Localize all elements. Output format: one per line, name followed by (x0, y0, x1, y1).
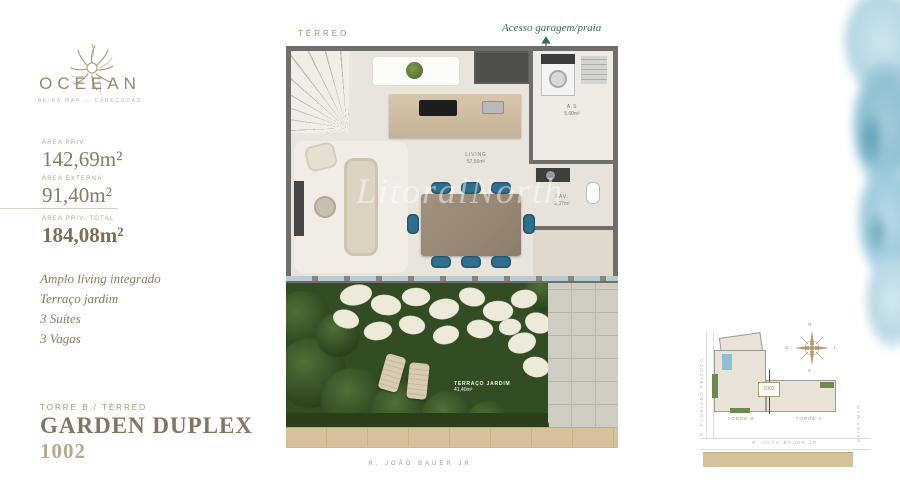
feature-suites: 3 Suítes (40, 311, 81, 327)
area-total-label: ÁREA PRIV. TOTAL (42, 216, 114, 222)
service-room-label: A.S 5,60m² (533, 104, 611, 118)
compass-n: N (808, 322, 811, 327)
brochure-page: OCEEAN BEIRA MAR — CABEÇUDAS ÁREA PRIV. … (0, 0, 900, 495)
lounge-chair-icon (406, 362, 430, 400)
dining-chair-icon (431, 182, 451, 194)
washer-panel (541, 54, 575, 64)
watercolor-accent (866, 210, 888, 254)
lav-sink-icon (546, 171, 555, 180)
dining-table-icon (421, 194, 521, 256)
side-paving (548, 283, 618, 427)
minimap-sidewalk (703, 452, 853, 467)
site-minimap: N S L O 1002 TORRE B TORRE A R. FLORIANO… (700, 322, 870, 468)
compass-e: L (834, 345, 837, 350)
washer-drum-icon (549, 70, 567, 88)
sofa-icon (344, 158, 378, 256)
kitchen-cabinet (474, 51, 530, 84)
beira-mar-label: BEIRA MAR (856, 372, 861, 442)
area-externa-value: 91,40m² (42, 183, 112, 208)
unit-number: 1002 (40, 439, 86, 464)
unit-tower-floor: TORRE B / TÉRREO (40, 403, 147, 412)
minimap-green (820, 382, 834, 388)
main-street-label: R. JOÃO BAUER JR (330, 461, 510, 467)
minimap-unit-1002: 1002 (758, 382, 780, 397)
service-room-area: 5,60m² (533, 111, 611, 118)
minimap-pool (722, 354, 732, 370)
service-room-name: A.S (533, 104, 611, 111)
sliding-door (286, 276, 618, 281)
living-room-label: LIVING 57,56m² (444, 152, 508, 166)
feature-terraco: Terraço jardim (40, 291, 118, 307)
dining-chair-icon (407, 214, 419, 234)
area-externa-label: ÁREA EXTERNA (42, 176, 102, 182)
watercolor-accent (858, 110, 884, 166)
living-room-name: LIVING (444, 152, 508, 159)
brand-name: OCEEAN (20, 74, 160, 94)
dining-chair-icon (461, 182, 481, 194)
dining-chair-icon (491, 182, 511, 194)
plant-icon (406, 62, 423, 79)
plan-floor-label: TÉRREO (298, 29, 349, 38)
living-room-area: 57,56m² (444, 159, 508, 166)
minimap-street-bottom-label: R. JOÃO BAUER JR (730, 440, 840, 445)
terrace-area: 41,40m² (454, 387, 534, 393)
minimap-street-left-label: R. FLORIANO PEIXOTO (699, 336, 704, 436)
area-priv-value: 142,69m² (42, 147, 122, 172)
feature-vagas: 3 Vagas (40, 331, 81, 347)
dining-chair-icon (461, 256, 481, 268)
dining-chair-icon (431, 256, 451, 268)
bottom-hedge (286, 413, 548, 427)
appliance-grille (581, 56, 607, 84)
minimap-green (730, 408, 750, 413)
lav-room-name: LAV. (533, 194, 591, 201)
lav-room-area: 2,37m² (533, 201, 591, 208)
compass-w: O (785, 345, 789, 350)
tv-panel-icon (294, 181, 304, 236)
divider-line (0, 208, 118, 209)
floor-plan: A.S 5,60m² LAV. 2,37m² LIVING 57,56m² (286, 46, 618, 427)
minimap-green (712, 374, 718, 398)
dining-chair-icon (491, 256, 511, 268)
dining-chair-icon (523, 214, 535, 234)
entry-hall (533, 230, 613, 278)
area-priv-label: ÁREA PRIV. (42, 140, 87, 146)
compass-s: S (808, 368, 811, 373)
coffee-table-icon (314, 196, 336, 218)
terrace-label: TERRAÇO JARDIM 41,40m² (454, 381, 534, 393)
feature-living: Amplo living integrado (40, 271, 161, 287)
compass-icon (792, 328, 832, 368)
staircase (291, 51, 349, 133)
garden-terrace: TERRAÇO JARDIM 41,40m² (286, 283, 618, 427)
minimap-tower-a-label: TORRE A (782, 416, 836, 421)
area-total-value: 184,08m² (42, 223, 124, 248)
brand-tagline: BEIRA MAR — CABEÇUDAS (16, 98, 164, 104)
kitchen-sink-icon (482, 101, 504, 114)
access-label: Acesso garagem/praia (502, 22, 601, 34)
cooktop-icon (419, 100, 457, 116)
lav-room-label: LAV. 2,37m² (533, 194, 591, 208)
sidewalk-strip (286, 427, 618, 448)
unit-title: GARDEN DUPLEX (40, 413, 253, 439)
minimap-tower-b-label: TORRE B (714, 416, 768, 421)
